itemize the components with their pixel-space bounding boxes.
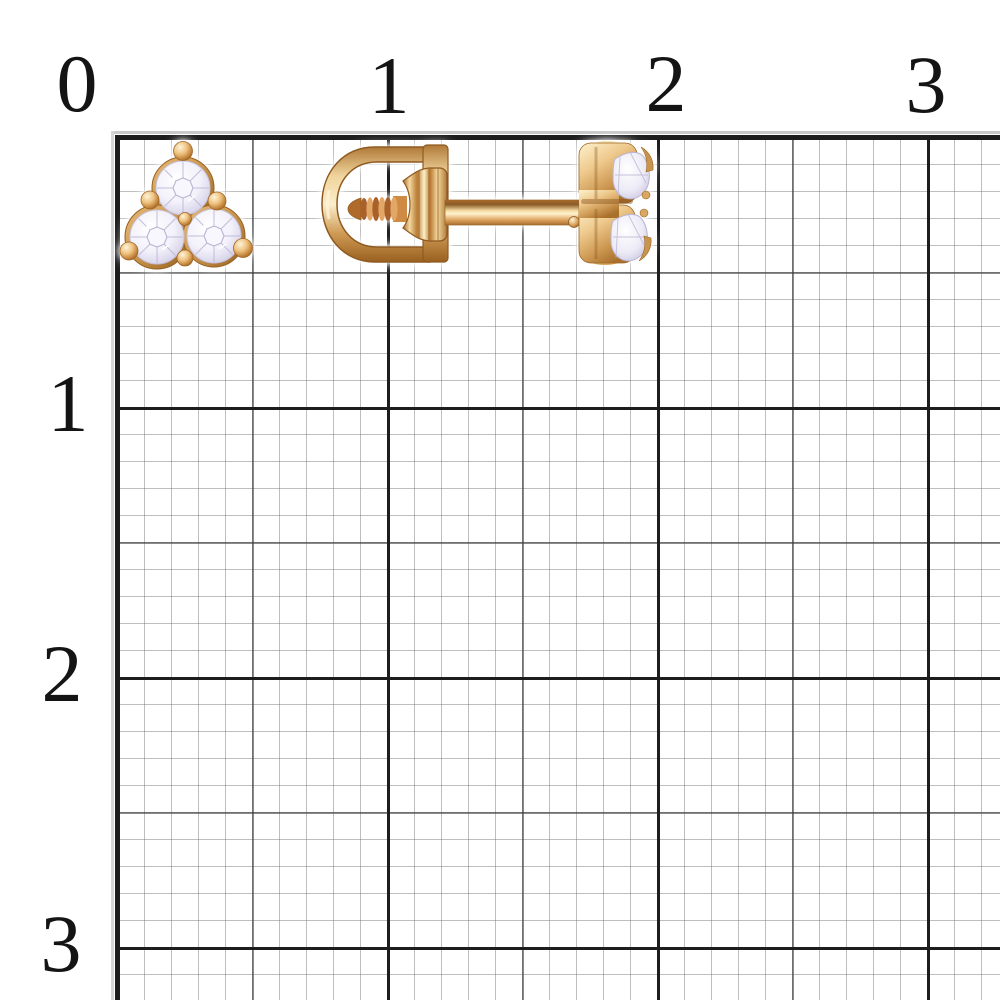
stud-earring-side-view [315,135,660,270]
earring-post [445,200,579,225]
ruler-label-left-2: 2 [42,633,83,715]
screw-back-nut [403,168,447,241]
ruler-label-left-3: 3 [41,903,82,985]
stud-earring-front-view [118,138,255,275]
screw-thread [348,196,407,222]
ruler-label-top-1: 1 [369,45,410,127]
post-notch-bead [569,217,580,228]
ruler-label-top-0: 0 [57,43,98,125]
side-stone-bottom [611,214,647,261]
cluster-head-side [579,141,653,265]
grid-left-edge-shadow [111,131,114,1000]
ruler-label-left-1: 1 [48,363,89,445]
grid-top-edge-shadow [112,131,1000,134]
ruler-label-top-2: 2 [646,43,687,125]
ruler-label-top-3: 3 [906,44,947,126]
